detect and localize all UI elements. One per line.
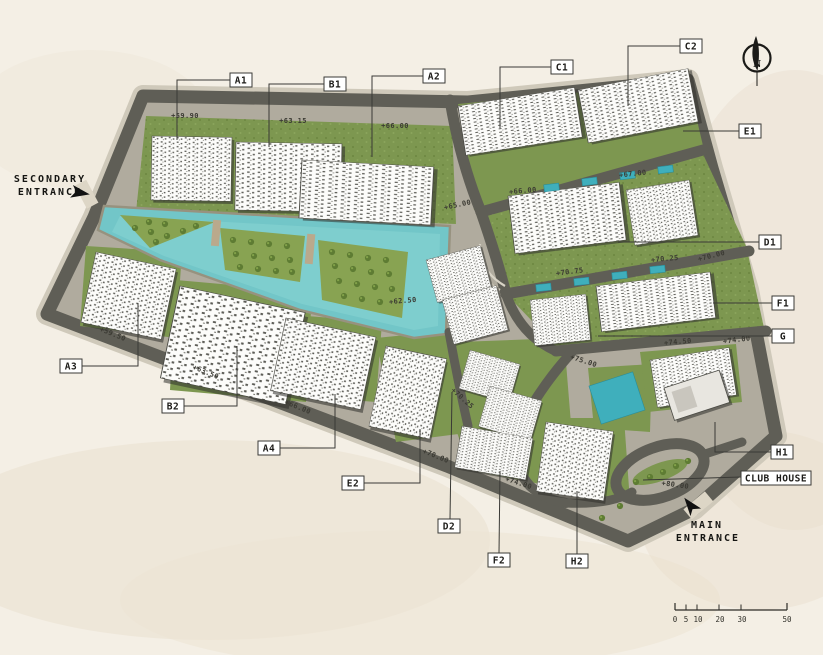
block-label-text: B2 bbox=[167, 402, 179, 413]
elevation-label: +63.15 bbox=[279, 117, 307, 125]
block-label-a4: A4 bbox=[258, 441, 280, 455]
block-label-text: E2 bbox=[347, 479, 359, 490]
site-plan-canvas: A1 B1 A2 C1 C2 E1 D1 F1 G H1 A3 B2 A4 E2… bbox=[0, 0, 823, 655]
secondary-entrance-label-line1: SECONDARY bbox=[14, 174, 86, 185]
block-label-f1: F1 bbox=[772, 296, 794, 310]
elevation-label: +66.00 bbox=[381, 122, 409, 130]
main-entrance-label-line1: MAIN bbox=[691, 520, 723, 531]
block-label-text: F1 bbox=[777, 299, 789, 310]
block-label-text: H2 bbox=[571, 557, 583, 568]
scale-tick-label: 50 bbox=[782, 615, 792, 624]
block-label-a2: A2 bbox=[423, 69, 445, 83]
block-label-a1: A1 bbox=[230, 73, 252, 87]
block-label-text: G bbox=[780, 332, 786, 343]
block-label-text: F2 bbox=[493, 556, 505, 567]
block-label-h1: H1 bbox=[771, 445, 793, 459]
block-label-b1: B1 bbox=[324, 77, 346, 91]
block-label-text: E1 bbox=[744, 127, 756, 138]
block-label-h2: H2 bbox=[566, 554, 588, 568]
block-label-f2: F2 bbox=[488, 553, 510, 567]
block-label-e1: E1 bbox=[739, 124, 761, 138]
master-plan-drawing: A1 B1 A2 C1 C2 E1 D1 F1 G H1 A3 B2 A4 E2… bbox=[0, 0, 823, 655]
block-label-text: A1 bbox=[235, 76, 247, 87]
block-label-text: D1 bbox=[764, 238, 776, 249]
block-label-c1: C1 bbox=[551, 60, 573, 74]
block-label-c2: C2 bbox=[680, 39, 702, 53]
club-house-label-text: CLUB HOUSE bbox=[745, 474, 807, 485]
block-label-text: A3 bbox=[65, 362, 77, 373]
scale-tick-label: 30 bbox=[737, 615, 747, 624]
block-label-text: A4 bbox=[263, 444, 275, 455]
scale-tick-label: 5 bbox=[684, 615, 689, 624]
compass-north-letter: N bbox=[753, 60, 761, 70]
block-label-b2: B2 bbox=[162, 399, 184, 413]
main-entrance-label-line2: ENTRANCE bbox=[676, 533, 740, 544]
scale-tick-label: 0 bbox=[673, 615, 678, 624]
block-label-text: D2 bbox=[443, 522, 455, 533]
block-label-text: B1 bbox=[329, 80, 341, 91]
block-label-text: C2 bbox=[685, 42, 697, 53]
block-label-text: H1 bbox=[776, 448, 788, 459]
block-label-e2: E2 bbox=[342, 476, 364, 490]
elevation-label: +59.90 bbox=[171, 112, 199, 120]
scale-tick-label: 20 bbox=[715, 615, 725, 624]
scale-tick-label: 10 bbox=[693, 615, 703, 624]
block-label-a3: A3 bbox=[60, 359, 82, 373]
club-house-label: CLUB HOUSE bbox=[741, 471, 811, 485]
block-label-text: C1 bbox=[556, 63, 568, 74]
block-label-text: A2 bbox=[428, 72, 440, 83]
secondary-entrance-callout: SECONDARY ENTRANCE bbox=[14, 174, 91, 200]
block-label-d2: D2 bbox=[438, 519, 460, 533]
block-label-d1: D1 bbox=[759, 235, 781, 249]
block-label-g: G bbox=[772, 329, 794, 343]
